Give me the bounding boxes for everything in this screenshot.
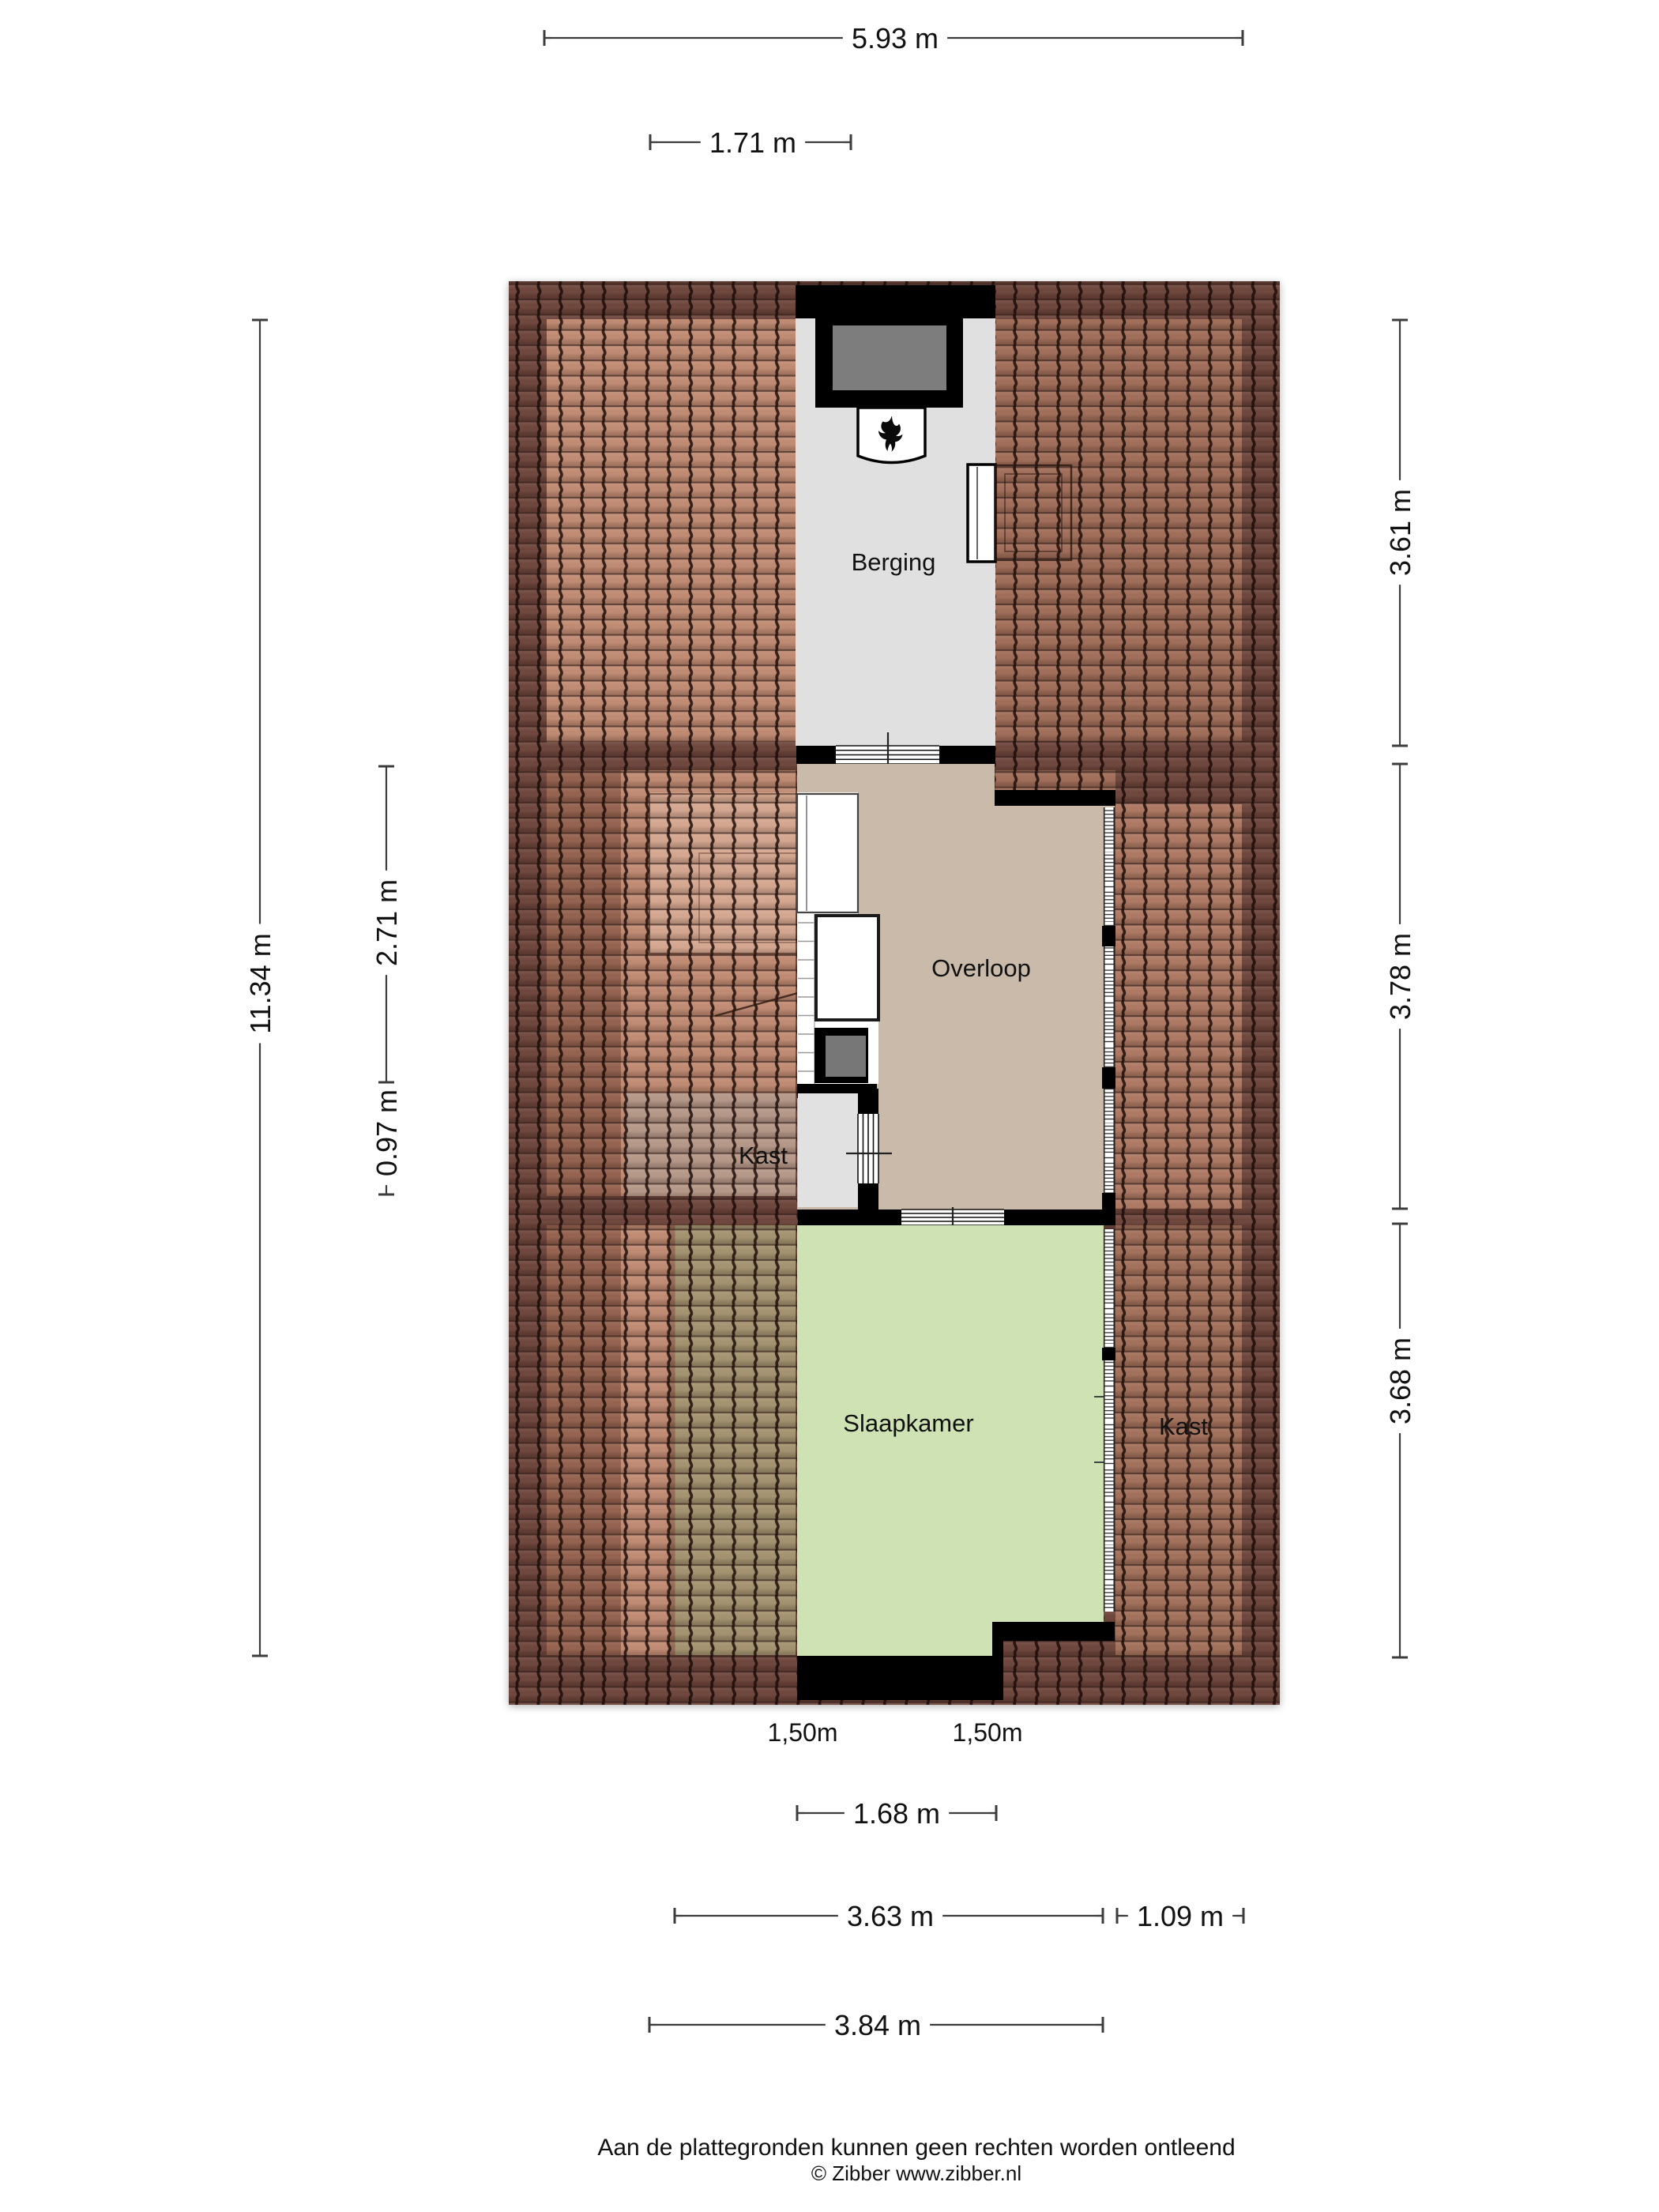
- svg-text:Overloop: Overloop: [931, 954, 1031, 982]
- svg-text:Berging: Berging: [852, 548, 936, 576]
- svg-text:11.34 m: 11.34 m: [244, 933, 276, 1033]
- svg-text:2.71 m: 2.71 m: [371, 879, 403, 966]
- svg-text:3.63 m: 3.63 m: [847, 1900, 934, 1932]
- svg-text:© Zibber www.zibber.nl: © Zibber www.zibber.nl: [811, 2161, 1021, 2185]
- svg-text:1.68 m: 1.68 m: [853, 1797, 940, 1830]
- svg-text:3.84 m: 3.84 m: [834, 2009, 921, 2041]
- svg-text:3.68 m: 3.68 m: [1384, 1337, 1416, 1424]
- svg-text:1.09 m: 1.09 m: [1137, 1900, 1224, 1932]
- svg-text:3.61 m: 3.61 m: [1384, 489, 1416, 576]
- svg-text:0.97 m: 0.97 m: [371, 1089, 403, 1176]
- svg-text:Aan de plattegronden kunnen ge: Aan de plattegronden kunnen geen rechten…: [597, 2135, 1235, 2161]
- svg-text:1,50m: 1,50m: [953, 1718, 1023, 1747]
- svg-text:Slaapkamer: Slaapkamer: [843, 1409, 973, 1437]
- svg-text:5.93 m: 5.93 m: [852, 22, 939, 55]
- svg-text:3.78 m: 3.78 m: [1384, 933, 1416, 1020]
- svg-text:Kast: Kast: [739, 1142, 788, 1169]
- svg-text:1,50m: 1,50m: [768, 1718, 838, 1747]
- svg-text:1.71 m: 1.71 m: [709, 126, 796, 159]
- svg-text:Kast: Kast: [1159, 1413, 1208, 1440]
